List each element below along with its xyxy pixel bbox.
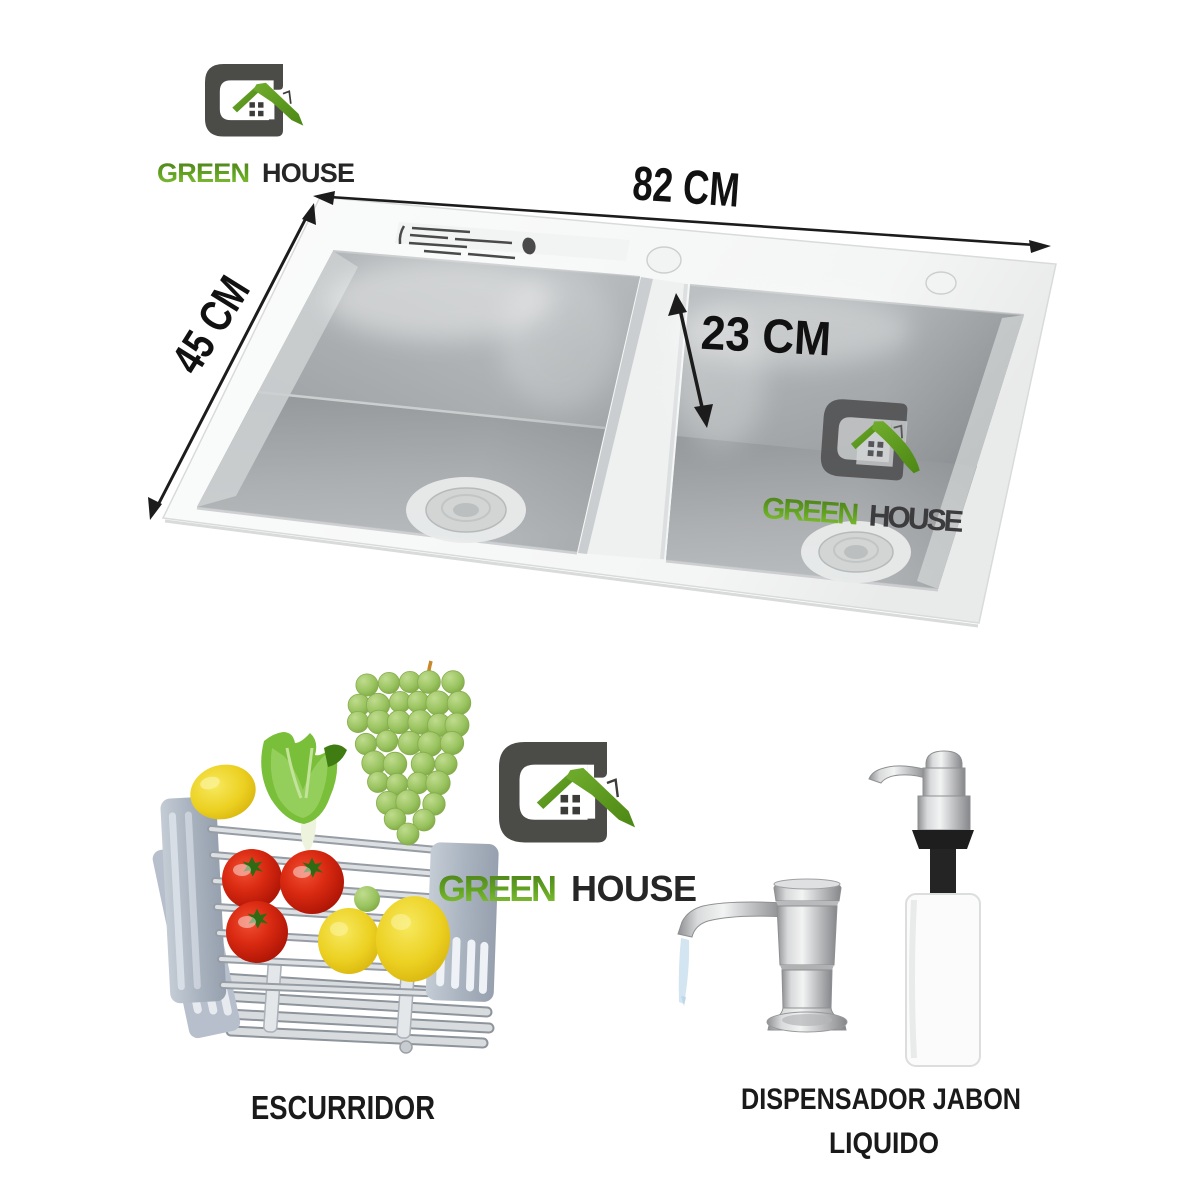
svg-text:LIQUIDO: LIQUIDO	[829, 1127, 939, 1160]
svg-text:GREEN: GREEN	[438, 868, 557, 909]
svg-text:23 CM: 23 CM	[700, 307, 833, 367]
svg-text:HOUSE: HOUSE	[868, 499, 965, 539]
svg-text:82 CM: 82 CM	[631, 157, 741, 217]
svg-text:GREEN: GREEN	[157, 158, 250, 188]
svg-text:HOUSE: HOUSE	[571, 868, 697, 909]
svg-text:HOUSE: HOUSE	[262, 158, 355, 188]
svg-text:DISPENSADOR JABON: DISPENSADOR JABON	[741, 1083, 1021, 1116]
svg-text:GREEN: GREEN	[761, 492, 860, 532]
svg-text:ESCURRIDOR: ESCURRIDOR	[251, 1089, 435, 1126]
